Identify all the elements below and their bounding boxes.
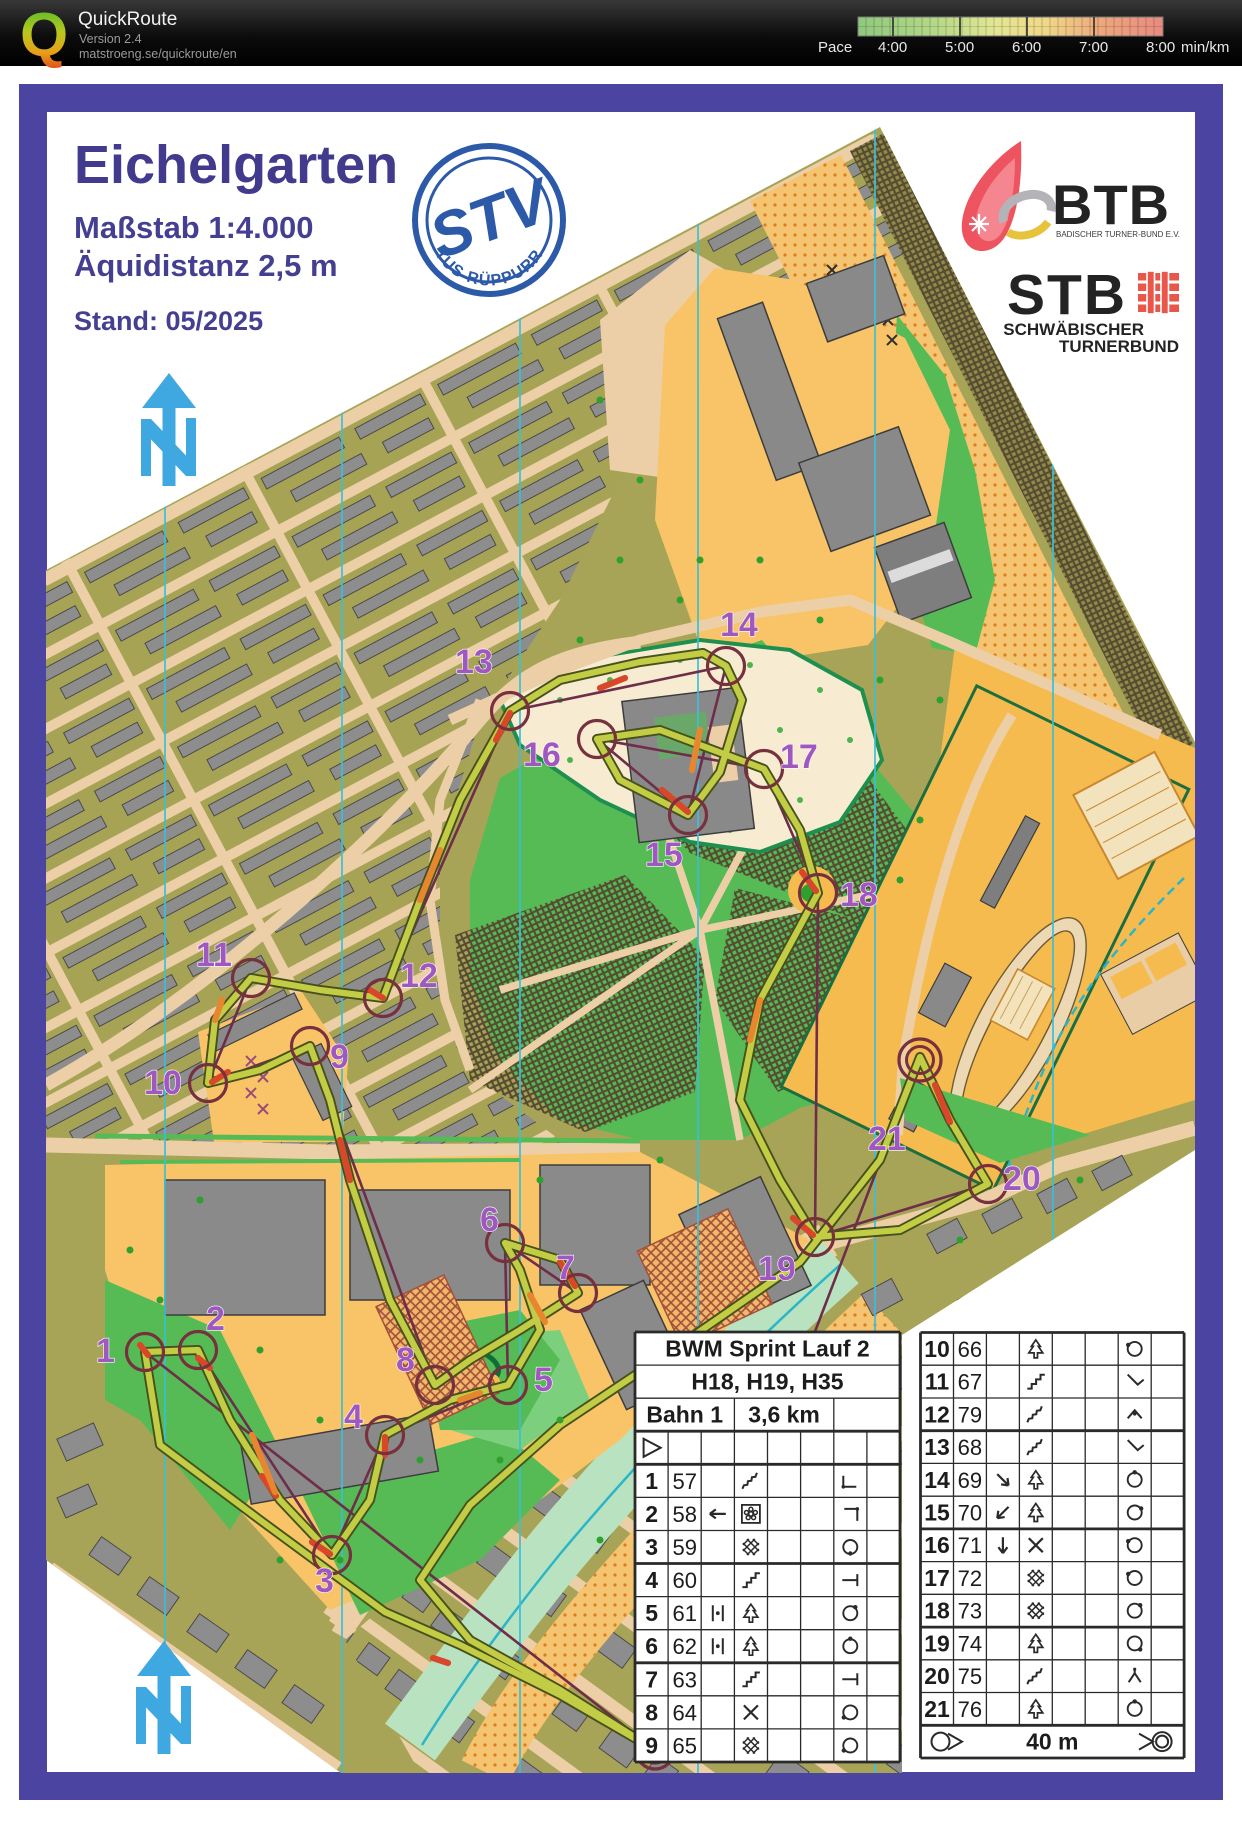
- svg-text:7: 7: [645, 1666, 658, 1692]
- svg-text:2: 2: [206, 1300, 225, 1338]
- svg-text:1: 1: [96, 1332, 115, 1370]
- svg-text:9: 9: [645, 1733, 658, 1759]
- svg-text:8:00: 8:00: [1146, 39, 1175, 56]
- svg-text:12: 12: [924, 1401, 950, 1427]
- svg-text:70: 70: [958, 1501, 982, 1526]
- svg-text:66: 66: [958, 1337, 982, 1362]
- svg-text:64: 64: [672, 1700, 696, 1725]
- svg-text:15: 15: [645, 836, 683, 874]
- svg-text:75: 75: [958, 1664, 982, 1689]
- svg-text:7: 7: [556, 1249, 575, 1287]
- svg-text:7:00: 7:00: [1079, 39, 1108, 56]
- svg-text:61: 61: [672, 1601, 696, 1626]
- svg-text:74: 74: [958, 1631, 982, 1656]
- svg-text:Stand: 05/2025: Stand: 05/2025: [74, 306, 263, 336]
- svg-text:57: 57: [672, 1469, 696, 1494]
- svg-text:63: 63: [672, 1667, 696, 1692]
- svg-text:60: 60: [672, 1568, 696, 1593]
- svg-text:Maßstab 1:4.000: Maßstab 1:4.000: [74, 210, 314, 245]
- svg-text:5:00: 5:00: [945, 39, 974, 56]
- svg-text:59: 59: [672, 1535, 696, 1560]
- svg-text:H18, H19, H35: H18, H19, H35: [691, 1369, 843, 1395]
- svg-text:17: 17: [780, 738, 818, 776]
- svg-text:TURNERBUND: TURNERBUND: [1059, 337, 1179, 356]
- svg-text:BTB: BTB: [1052, 173, 1170, 236]
- svg-text:21: 21: [924, 1696, 950, 1722]
- svg-text:10: 10: [144, 1064, 182, 1102]
- svg-text:2: 2: [645, 1501, 658, 1527]
- svg-text:68: 68: [958, 1435, 982, 1460]
- svg-text:20: 20: [1003, 1160, 1041, 1198]
- svg-text:14: 14: [720, 606, 758, 644]
- svg-text:62: 62: [672, 1634, 696, 1659]
- svg-text:5: 5: [534, 1361, 553, 1399]
- svg-text:65: 65: [672, 1734, 696, 1759]
- svg-text:19: 19: [758, 1250, 796, 1288]
- svg-text:3: 3: [315, 1562, 334, 1600]
- svg-text:71: 71: [958, 1533, 982, 1558]
- svg-text:8: 8: [645, 1699, 658, 1725]
- svg-text:18: 18: [924, 1598, 950, 1624]
- svg-text:11: 11: [196, 936, 232, 974]
- svg-text:17: 17: [924, 1565, 950, 1591]
- svg-text:Eichelgarten: Eichelgarten: [74, 135, 398, 195]
- svg-text:13: 13: [924, 1434, 950, 1460]
- svg-text:STB: STB: [1007, 263, 1127, 327]
- svg-text:67: 67: [958, 1370, 982, 1395]
- svg-text:11: 11: [925, 1369, 950, 1395]
- svg-text:58: 58: [672, 1502, 696, 1527]
- svg-text:QuickRoute: QuickRoute: [78, 9, 177, 30]
- svg-text:15: 15: [924, 1500, 950, 1526]
- svg-text:Version 2.4: Version 2.4: [79, 32, 142, 46]
- svg-text:40 m: 40 m: [1026, 1729, 1078, 1755]
- svg-text:6: 6: [480, 1201, 499, 1239]
- svg-text:13: 13: [455, 643, 493, 681]
- svg-text:21: 21: [868, 1120, 906, 1158]
- svg-text:BADISCHER TURNER-BUND E.V.: BADISCHER TURNER-BUND E.V.: [1056, 230, 1180, 239]
- svg-text:Äquidistanz 2,5 m: Äquidistanz 2,5 m: [74, 248, 338, 283]
- svg-text:12: 12: [400, 957, 438, 995]
- svg-text:6: 6: [645, 1633, 658, 1659]
- svg-text:4: 4: [645, 1567, 658, 1593]
- svg-text:6:00: 6:00: [1012, 39, 1041, 56]
- svg-text:5: 5: [645, 1600, 658, 1626]
- svg-text:10: 10: [924, 1336, 950, 1362]
- svg-text:Pace: Pace: [818, 39, 852, 56]
- svg-text:3: 3: [645, 1534, 658, 1560]
- svg-text:matstroeng.se/quickroute/en: matstroeng.se/quickroute/en: [79, 47, 237, 61]
- svg-text:16: 16: [523, 736, 561, 774]
- svg-text:Q: Q: [20, 1, 68, 70]
- svg-text:79: 79: [958, 1402, 982, 1427]
- svg-text:4:00: 4:00: [878, 39, 907, 56]
- svg-text:Bahn 1: Bahn 1: [646, 1402, 723, 1428]
- svg-text:1: 1: [645, 1468, 658, 1494]
- svg-text:69: 69: [958, 1468, 982, 1493]
- svg-text:76: 76: [958, 1697, 982, 1722]
- svg-text:14: 14: [924, 1467, 950, 1493]
- svg-text:4: 4: [344, 1398, 363, 1436]
- svg-text:BWM Sprint Lauf 2: BWM Sprint Lauf 2: [665, 1336, 869, 1362]
- svg-text:19: 19: [924, 1630, 950, 1656]
- svg-text:min/km: min/km: [1181, 39, 1229, 56]
- svg-text:18: 18: [840, 876, 878, 914]
- svg-text:20: 20: [924, 1663, 950, 1689]
- svg-text:3,6 km: 3,6 km: [748, 1402, 820, 1428]
- svg-text:72: 72: [958, 1566, 982, 1591]
- svg-text:8: 8: [396, 1341, 415, 1379]
- svg-text:16: 16: [924, 1532, 950, 1558]
- svg-text:73: 73: [958, 1599, 982, 1624]
- svg-text:9: 9: [330, 1038, 349, 1076]
